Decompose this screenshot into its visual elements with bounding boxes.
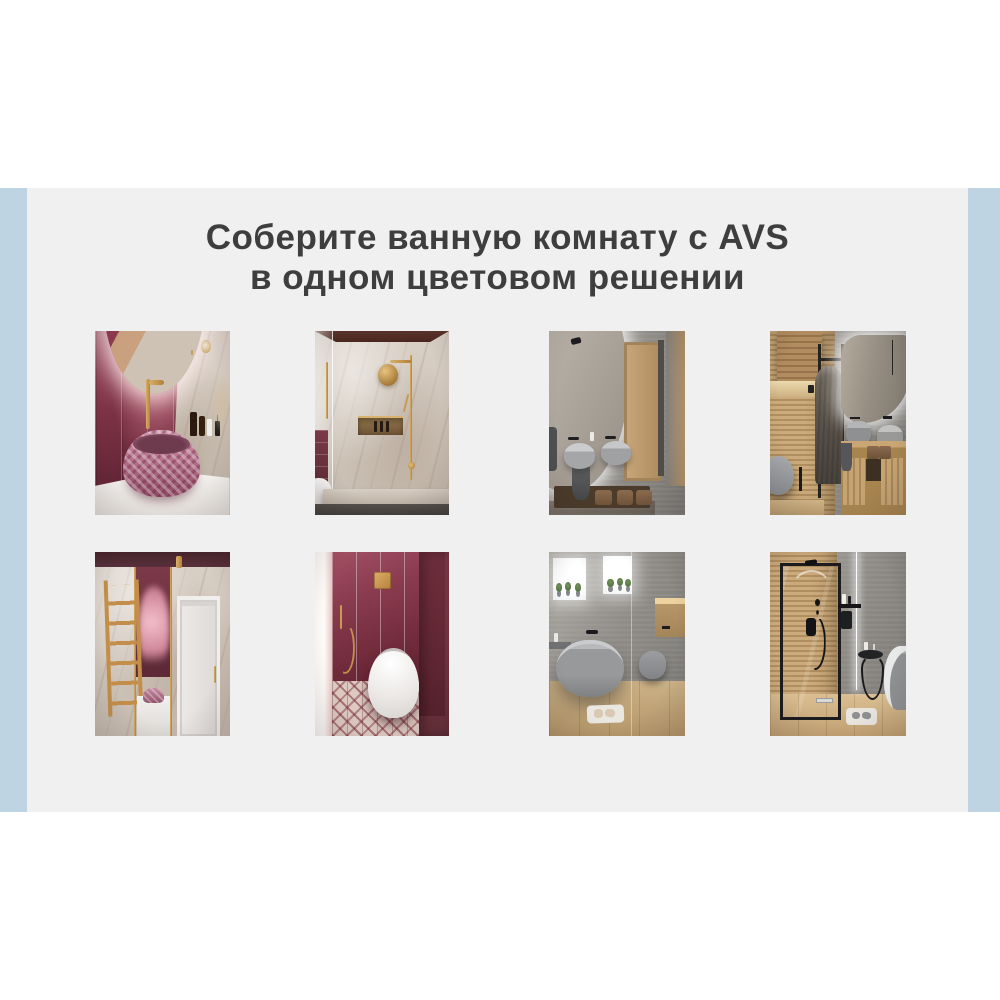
black-spout (662, 626, 670, 629)
gold-flush-plate (374, 572, 391, 589)
toilet-brush (799, 467, 802, 491)
bottle (848, 596, 852, 604)
bottle (554, 633, 558, 642)
collage-grey-wood-black (509, 315, 946, 752)
niche-bottle (380, 421, 383, 432)
black-wall-faucet (883, 416, 893, 419)
crystal-sink-reflection (143, 688, 163, 703)
content-card: Соберите ванную комнату с AVS в одном цв… (27, 188, 968, 812)
photo-grey-double-vanity (549, 331, 685, 515)
freestanding-bathtub (556, 640, 624, 697)
gold-faucet-spout (149, 380, 164, 385)
cosmetics (864, 642, 868, 650)
niche-bottle (374, 421, 377, 432)
towel-stack (617, 490, 633, 505)
amber-bottle (190, 412, 197, 436)
niche-bottle (386, 421, 389, 432)
wood-floor (770, 500, 824, 515)
gold-door-handle (326, 362, 328, 419)
collage-burgundy-gold (55, 315, 489, 752)
photo-burgundy-crystal-sink (95, 331, 230, 515)
dark-door-gap (658, 340, 663, 476)
hand-shower (403, 394, 409, 412)
open-shelf (866, 459, 881, 481)
ladder-rungs (108, 585, 139, 711)
wood-cabinet (777, 331, 822, 381)
gold-faucet (146, 379, 150, 429)
amber-bottle (199, 416, 205, 436)
black-switch (808, 385, 814, 392)
black-shelf (838, 604, 861, 607)
plant-pot (607, 579, 613, 587)
pampas-plume (211, 375, 230, 434)
hanging-bathrobe (815, 366, 844, 484)
dark-towel (549, 427, 557, 471)
plant-pot (556, 583, 562, 591)
promo-banner: Соберите ванную комнату с AVS в одном цв… (0, 0, 1000, 1000)
burgundy-ceiling (95, 552, 230, 567)
window (603, 556, 632, 595)
black-bath-mixer (586, 630, 598, 634)
plant-pot (575, 583, 581, 591)
shower-bench (323, 489, 449, 504)
freestanding-bathtub (884, 646, 906, 710)
hanging-towel (572, 467, 590, 500)
shower-arm (390, 360, 412, 363)
backlit-wood-vanity (655, 598, 685, 637)
title-line-1: Соберите ванную комнату с AVS (27, 218, 968, 258)
photo-burgundy-toilet (315, 552, 450, 736)
wooden-door (624, 342, 663, 480)
glass-partition-edge (631, 552, 632, 736)
hanging-towel (841, 443, 852, 471)
photo-gold-shower (315, 331, 450, 515)
shower-valve (408, 462, 415, 470)
window (553, 558, 586, 600)
round-vessel-sink (601, 441, 631, 465)
gold-hand-shower (340, 605, 342, 629)
towel-stack (867, 446, 879, 459)
grey-toilet (639, 651, 666, 679)
slipper (594, 709, 604, 717)
photo-black-frame-shower (770, 552, 906, 736)
glass-reflection (789, 570, 834, 622)
black-wall-faucet (850, 417, 860, 420)
towel-stack (595, 490, 611, 505)
frame-reflection (892, 340, 893, 375)
burgundy-side-wall (419, 552, 449, 736)
bottle (590, 432, 594, 441)
gold-spotlight (176, 556, 182, 568)
backlit-mirror (841, 335, 906, 423)
led-strip (856, 552, 857, 690)
side-door-edge (666, 331, 685, 486)
towel-stack (879, 446, 891, 459)
bottle (842, 594, 846, 604)
gold-sconce (201, 340, 210, 353)
slat-cabinet-door (881, 458, 903, 505)
dark-floor (315, 504, 450, 515)
photo-grey-bathtub (549, 552, 685, 736)
rain-shower-head (378, 364, 398, 386)
page-title: Соберите ванную комнату с AVS в одном цв… (27, 218, 968, 298)
towel-stack (636, 490, 652, 505)
title-line-2: в одном цветовом решении (27, 258, 968, 298)
ceiling-beam (315, 331, 450, 342)
black-wall-faucet (605, 436, 616, 439)
white-door (180, 600, 218, 736)
black-towel (841, 611, 852, 629)
lit-doorway-strip (315, 552, 332, 736)
photo-gold-towel-rail (95, 552, 230, 736)
black-wall-faucet (568, 437, 579, 440)
round-vessel-sink (564, 443, 595, 469)
photo-wood-toilet-robe (770, 331, 906, 515)
